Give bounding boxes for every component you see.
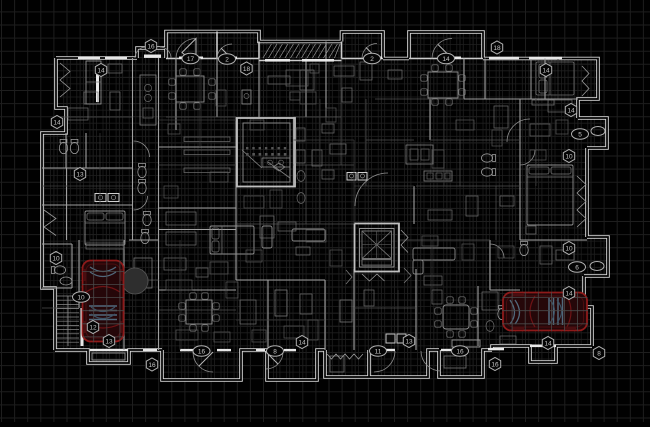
svg-text:16: 16 bbox=[198, 348, 206, 355]
svg-text:16: 16 bbox=[456, 348, 464, 355]
svg-text:14: 14 bbox=[544, 340, 552, 347]
svg-text:8: 8 bbox=[597, 350, 601, 357]
svg-text:14: 14 bbox=[565, 290, 573, 297]
svg-text:5: 5 bbox=[578, 131, 582, 138]
svg-text:10: 10 bbox=[565, 245, 573, 252]
svg-text:18: 18 bbox=[243, 66, 251, 73]
svg-text:14: 14 bbox=[567, 107, 575, 114]
svg-text:14: 14 bbox=[97, 67, 105, 74]
svg-text:10: 10 bbox=[77, 294, 85, 301]
svg-text:18: 18 bbox=[493, 45, 501, 52]
svg-text:16: 16 bbox=[148, 362, 156, 369]
svg-text:13: 13 bbox=[76, 171, 84, 178]
svg-text:10: 10 bbox=[52, 255, 60, 262]
svg-text:2: 2 bbox=[225, 56, 229, 63]
svg-text:16: 16 bbox=[491, 361, 499, 368]
svg-text:17: 17 bbox=[187, 56, 195, 63]
svg-text:14: 14 bbox=[542, 67, 550, 74]
svg-text:10: 10 bbox=[565, 153, 573, 160]
svg-text:14: 14 bbox=[298, 339, 306, 346]
svg-text:16: 16 bbox=[147, 43, 155, 50]
svg-text:11: 11 bbox=[375, 348, 382, 355]
svg-text:2: 2 bbox=[370, 56, 374, 63]
svg-text:13: 13 bbox=[405, 338, 413, 345]
svg-text:14: 14 bbox=[442, 56, 450, 63]
svg-text:14: 14 bbox=[53, 119, 61, 126]
svg-text:8: 8 bbox=[273, 348, 277, 355]
svg-text:13: 13 bbox=[105, 338, 113, 345]
svg-text:6: 6 bbox=[575, 264, 579, 271]
svg-text:12: 12 bbox=[89, 324, 97, 331]
